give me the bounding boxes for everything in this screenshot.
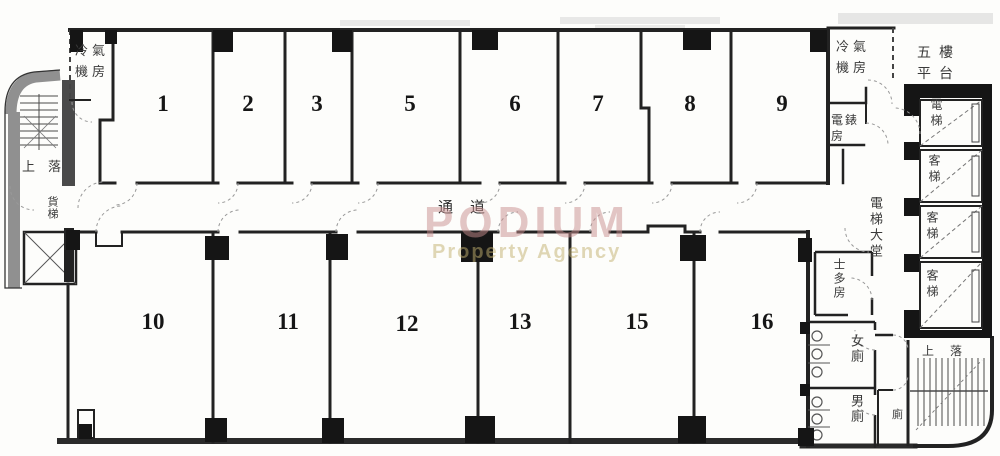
aircon-room-right-label: 冷氣機房 bbox=[836, 36, 874, 78]
meter-room-label: 電錶房 bbox=[831, 112, 863, 144]
unit-number-13: 13 bbox=[509, 309, 532, 335]
service-lift-label: 貨梯 bbox=[44, 196, 60, 220]
floorplan-canvas: 1 2 3 5 6 7 8 9 10 11 12 13 15 16 冷氣機房 冷… bbox=[0, 0, 1000, 456]
main-lift-label: 電梯 bbox=[928, 98, 945, 130]
top-row-walls bbox=[70, 30, 866, 183]
unit-number-8: 8 bbox=[684, 91, 696, 117]
toilet-fixtures bbox=[808, 331, 830, 440]
unit-number-3: 3 bbox=[311, 91, 323, 117]
unit-number-6: 6 bbox=[509, 91, 521, 117]
male-toilet-label: 男廁 bbox=[847, 394, 866, 424]
unit-number-11: 11 bbox=[277, 309, 299, 335]
platform-label: 五樓平台 bbox=[917, 42, 967, 84]
store-room-label: 士多房 bbox=[831, 258, 848, 300]
small-toilet-label: 廁 bbox=[892, 406, 903, 422]
unit-number-2: 2 bbox=[242, 91, 254, 117]
passenger-lift-2-label: 客梯 bbox=[924, 211, 941, 243]
unit-number-10: 10 bbox=[142, 309, 165, 335]
lift-lobby-label: 電梯大堂 bbox=[866, 196, 885, 260]
unit-number-16: 16 bbox=[751, 309, 774, 335]
unit-number-5: 5 bbox=[404, 91, 416, 117]
unit-number-12: 12 bbox=[396, 311, 419, 337]
unit-number-15: 15 bbox=[626, 309, 649, 335]
stairs-right-label: 上落 bbox=[922, 342, 978, 359]
lift-door-panels bbox=[972, 104, 979, 322]
unit-number-7: 7 bbox=[592, 91, 604, 117]
unit-number-9: 9 bbox=[776, 91, 788, 117]
female-toilet-label: 女廁 bbox=[847, 334, 866, 364]
watermark-tagline: Property Agency bbox=[432, 241, 621, 264]
passenger-lift-3-label: 客梯 bbox=[924, 269, 941, 301]
stairs-left-label: 上落 bbox=[22, 156, 74, 175]
unit-number-1: 1 bbox=[157, 91, 169, 117]
passenger-lift-1-label: 客梯 bbox=[926, 154, 943, 186]
left-stair-treads bbox=[20, 94, 58, 150]
aircon-room-left-label: 冷氣機房 bbox=[75, 40, 113, 82]
